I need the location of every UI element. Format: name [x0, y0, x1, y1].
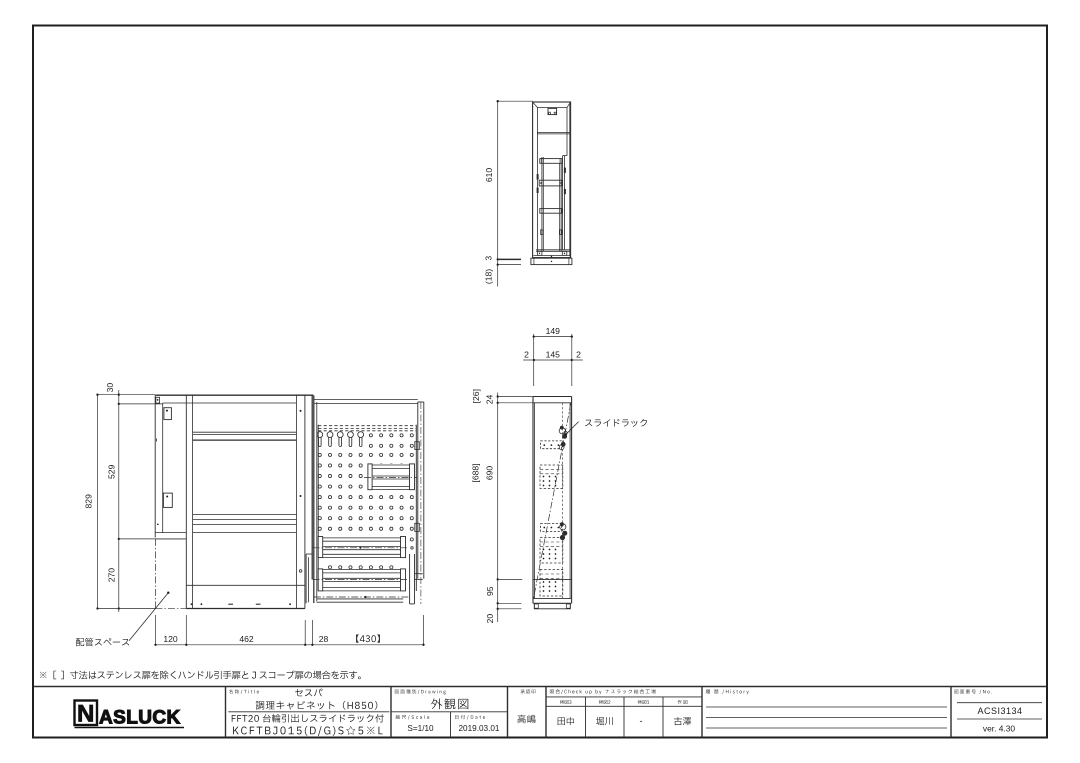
- svg-text:145: 145: [546, 349, 561, 359]
- svg-text:30: 30: [105, 383, 115, 393]
- svg-text:24: 24: [485, 395, 495, 405]
- svg-text:2: 2: [576, 349, 581, 359]
- svg-text:270: 270: [107, 568, 117, 583]
- svg-text:690: 690: [485, 466, 495, 481]
- svg-text:[26]: [26]: [471, 389, 481, 403]
- svg-text:[688]: [688]: [471, 463, 481, 482]
- svg-text:149: 149: [546, 326, 561, 336]
- svg-text:529: 529: [107, 464, 117, 479]
- svg-text:ver. 4.30: ver. 4.30: [983, 724, 1015, 734]
- svg-text:610: 610: [484, 168, 494, 183]
- svg-text:462: 462: [239, 634, 254, 644]
- svg-text:N: N: [77, 701, 94, 728]
- svg-text:829: 829: [84, 494, 94, 509]
- svg-text:(18): (18): [484, 269, 494, 284]
- svg-text:ASLUCK: ASLUCK: [99, 708, 181, 729]
- svg-text:2019.03.01: 2019.03.01: [459, 724, 500, 733]
- svg-text:20: 20: [485, 614, 495, 624]
- svg-text:3: 3: [484, 256, 494, 261]
- svg-text:ACSI3134: ACSI3134: [977, 706, 1022, 716]
- svg-text:28: 28: [319, 634, 329, 644]
- svg-text:2: 2: [524, 349, 529, 359]
- svg-text:120: 120: [163, 634, 178, 644]
- svg-text:S=1/10: S=1/10: [407, 724, 434, 733]
- svg-text:-: -: [640, 716, 643, 726]
- svg-text:95: 95: [485, 586, 495, 596]
